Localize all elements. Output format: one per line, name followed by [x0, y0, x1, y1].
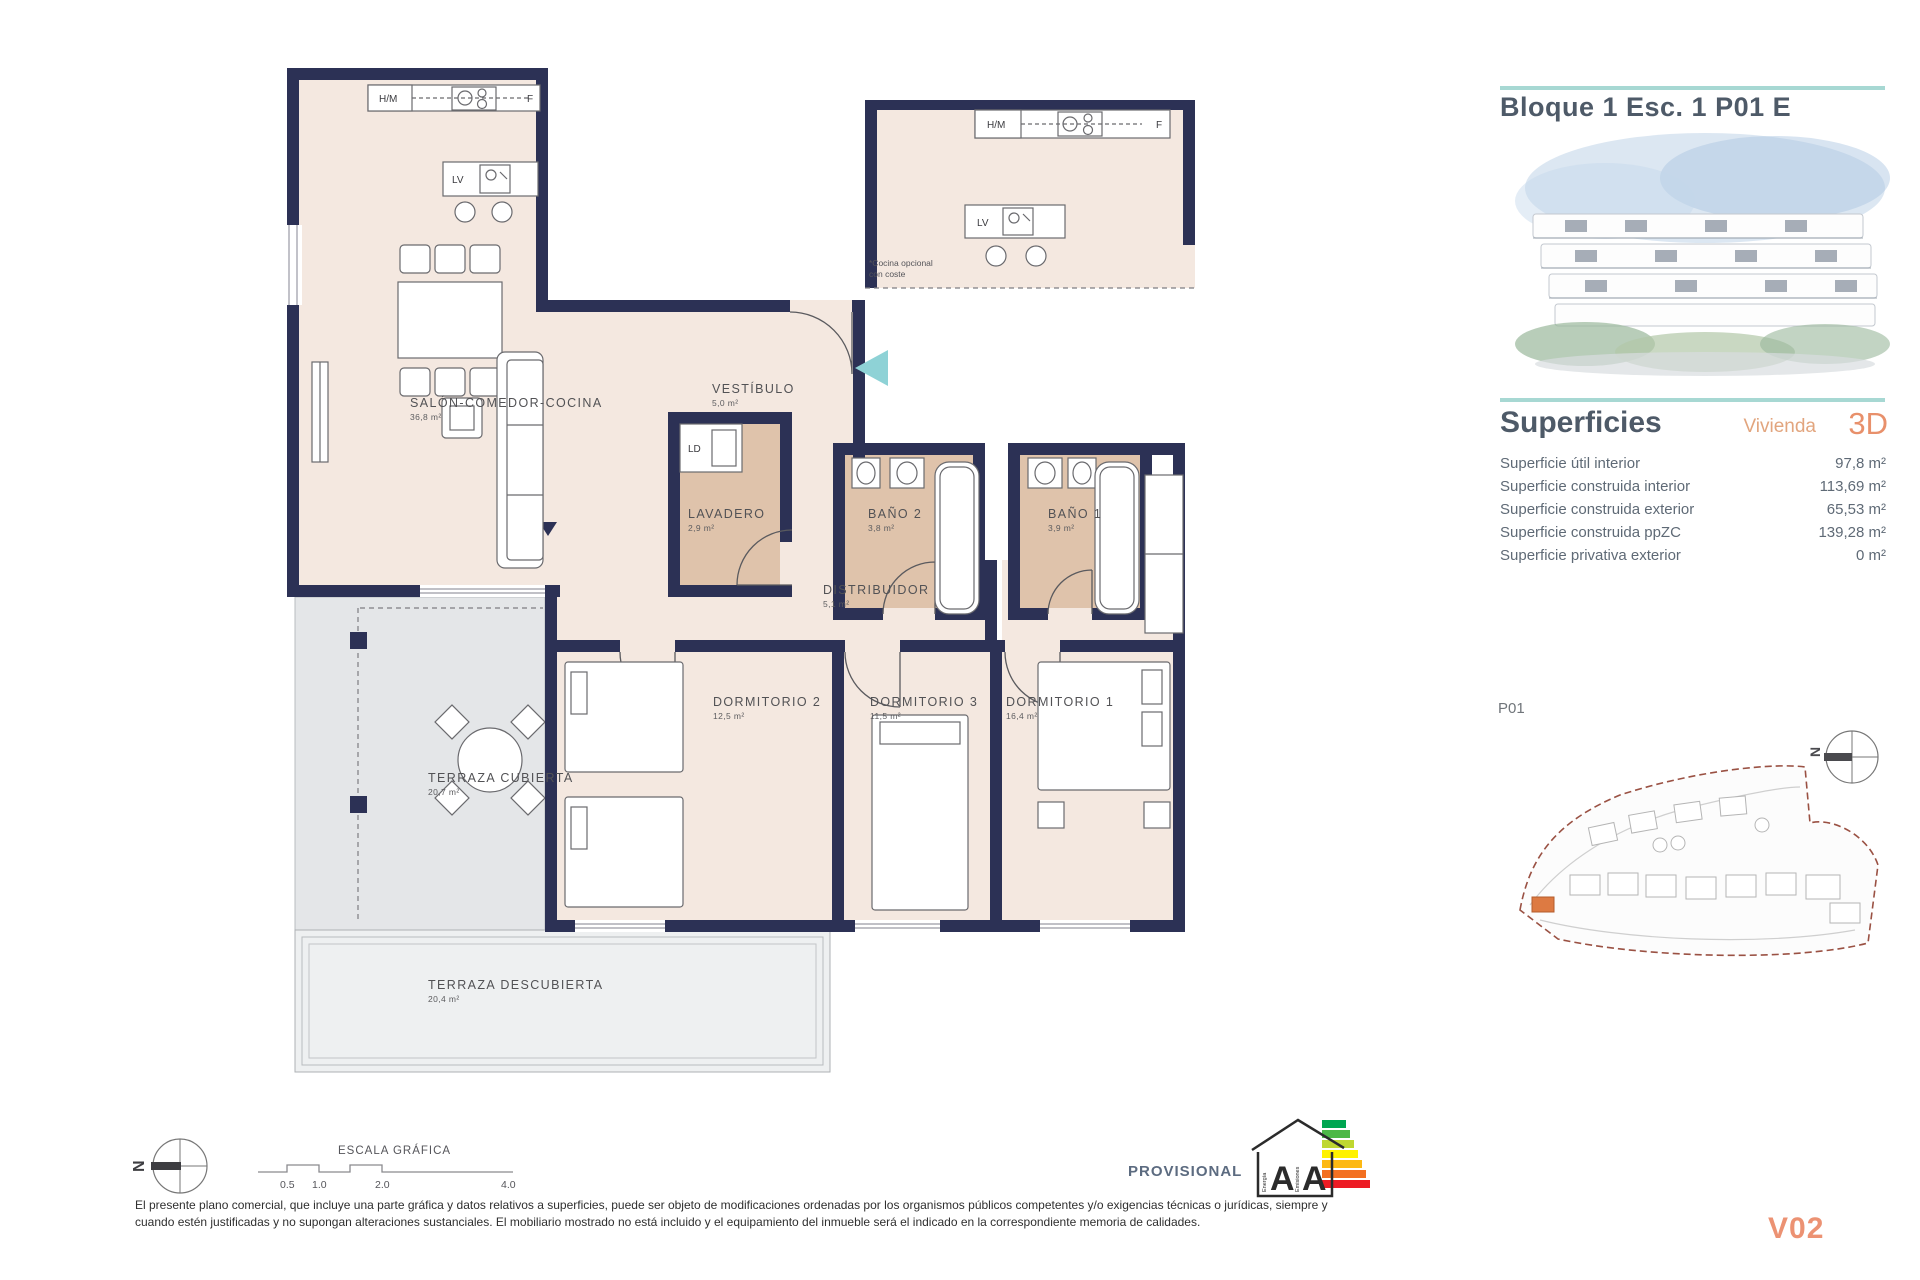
room-area-terraza-cubierta: 20,7 m²	[428, 787, 460, 797]
inset-f-label: F	[1156, 120, 1162, 131]
terraza-cubierta	[295, 597, 545, 930]
inset-lv-label: LV	[977, 218, 989, 229]
optional-kitchen-note-line1: *Cocina opcional	[869, 258, 933, 268]
room-area-salon: 36,8 m²	[410, 412, 442, 422]
row-label: Superficie construida ppZC	[1500, 521, 1681, 544]
provisional-label: PROVISIONAL	[1128, 1163, 1242, 1180]
superficies-table: Superficie útil interior 97,8 m² Superfi…	[1500, 452, 1886, 567]
row-value: 97,8 m²	[1835, 452, 1886, 475]
ld-label: LD	[688, 444, 701, 455]
row-value: 139,28 m²	[1818, 521, 1886, 544]
energy-letter-2: A	[1302, 1160, 1327, 1198]
energy-word-2: Emisiones	[1295, 1166, 1301, 1192]
room-label-dormitorio1: DORMITORIO 1	[1006, 695, 1114, 709]
row-value: 113,69 m²	[1820, 475, 1886, 498]
energy-word-1: Energía	[1262, 1172, 1268, 1192]
disclaimer-line-1: El presente plano comercial, que incluye…	[135, 1197, 1410, 1214]
row-label: Superficie útil interior	[1500, 452, 1640, 475]
floorplan-sheet: H/M F LV LD	[0, 0, 1920, 1280]
room-label-bano1: BAÑO 1	[1048, 507, 1102, 521]
room-area-bano1: 3,9 m²	[1048, 523, 1075, 533]
row-label: Superficie privativa exterior	[1500, 544, 1681, 567]
optional-kitchen-inset: H/M F LV *Cocina opcional con coste	[865, 100, 1195, 288]
hm-label: H/M	[379, 94, 397, 105]
plan-north-label: N	[131, 1160, 148, 1172]
scale-title: ESCALA GRÁFICA	[338, 1144, 451, 1157]
room-area-dormitorio2: 12,5 m²	[713, 711, 745, 721]
scale-tick-10: 1.0	[312, 1179, 327, 1191]
row-value: 0 m²	[1856, 544, 1886, 567]
row-label: Superficie construida interior	[1500, 475, 1690, 498]
siteplan-compass-icon: N	[1807, 731, 1878, 783]
table-row: Superficie construida exterior 65,53 m²	[1500, 498, 1886, 521]
room-label-dormitorio3: DORMITORIO 3	[870, 695, 978, 709]
site-plan: N	[1500, 725, 1895, 970]
disclaimer-text: El presente plano comercial, que incluye…	[135, 1197, 1410, 1231]
room-label-terraza-cubierta: TERRAZA CUBIERTA	[428, 771, 574, 785]
table-row: Superficie construida ppZC 139,28 m²	[1500, 521, 1886, 544]
plan-compass-icon: N	[118, 1128, 233, 1208]
scale-bar: ESCALA GRÁFICA 0.5 1.0 2.0 4.0	[250, 1138, 540, 1198]
room-label-bano2: BAÑO 2	[868, 507, 922, 521]
energy-letter-1: A	[1270, 1160, 1295, 1198]
room-label-vestibulo: VESTÍBULO	[712, 381, 795, 396]
disclaimer-line-2: cuando estén justificadas y no supongan …	[135, 1214, 1410, 1231]
siteplan-level-label: P01	[1498, 700, 1525, 717]
room-label-salon: SALÓN-COMEDOR-COCINA	[410, 395, 603, 410]
superficies-heading: Superficies	[1500, 406, 1662, 440]
row-label: Superficie construida exterior	[1500, 498, 1694, 521]
room-label-dormitorio2: DORMITORIO 2	[713, 695, 821, 709]
building-render-illustration	[1515, 126, 1890, 384]
room-area-distribuidor: 5,1 m²	[823, 599, 850, 609]
superficies-header: Superficies Vivienda 3D	[1500, 406, 1888, 440]
energy-rating-bars	[1322, 1120, 1370, 1188]
siteplan-north-label: N	[1807, 747, 1823, 757]
room-area-terraza-descubierta: 20,4 m²	[428, 994, 460, 1004]
room-label-terraza-descubierta: TERRAZA DESCUBIERTA	[428, 978, 603, 992]
energy-certificate-icon: A A Energía Emisiones	[1248, 1108, 1373, 1208]
table-row: Superficie privativa exterior 0 m²	[1500, 544, 1886, 567]
scale-tick-20: 2.0	[375, 1179, 390, 1191]
table-row: Superficie construida interior 113,69 m²	[1500, 475, 1886, 498]
highlighted-unit	[1532, 897, 1554, 912]
room-label-lavadero: LAVADERO	[688, 507, 765, 521]
room-area-dormitorio3: 11,5 m²	[870, 711, 901, 721]
scale-tick-40: 4.0	[501, 1179, 516, 1191]
terraza-descubierta	[295, 930, 830, 1072]
room-area-vestibulo: 5,0 m²	[712, 398, 739, 408]
lv-label: LV	[452, 175, 464, 186]
room-label-distribuidor: DISTRIBUIDOR	[823, 583, 929, 597]
vivienda-label: Vivienda	[1743, 416, 1816, 438]
room-area-dormitorio1: 16,4 m²	[1006, 711, 1038, 721]
row-value: 65,53 m²	[1827, 498, 1886, 521]
optional-kitchen-note-line2: con coste	[869, 269, 906, 279]
version-label: V02	[1768, 1212, 1824, 1246]
table-row: Superficie útil interior 97,8 m²	[1500, 452, 1886, 475]
room-area-bano2: 3,8 m²	[868, 523, 895, 533]
floor-plan-drawing: H/M F LV LD	[280, 60, 1200, 1080]
room-area-lavadero: 2,9 m²	[688, 523, 715, 533]
page-title: Bloque 1 Esc. 1 P01 E	[1500, 92, 1791, 123]
scale-tick-05: 0.5	[280, 1179, 295, 1191]
inset-hm-label: H/M	[987, 120, 1005, 131]
vivienda-type: 3D	[1848, 406, 1888, 442]
title-rule	[1500, 86, 1885, 90]
superficies-rule	[1500, 398, 1885, 402]
f-label: F	[527, 94, 533, 105]
